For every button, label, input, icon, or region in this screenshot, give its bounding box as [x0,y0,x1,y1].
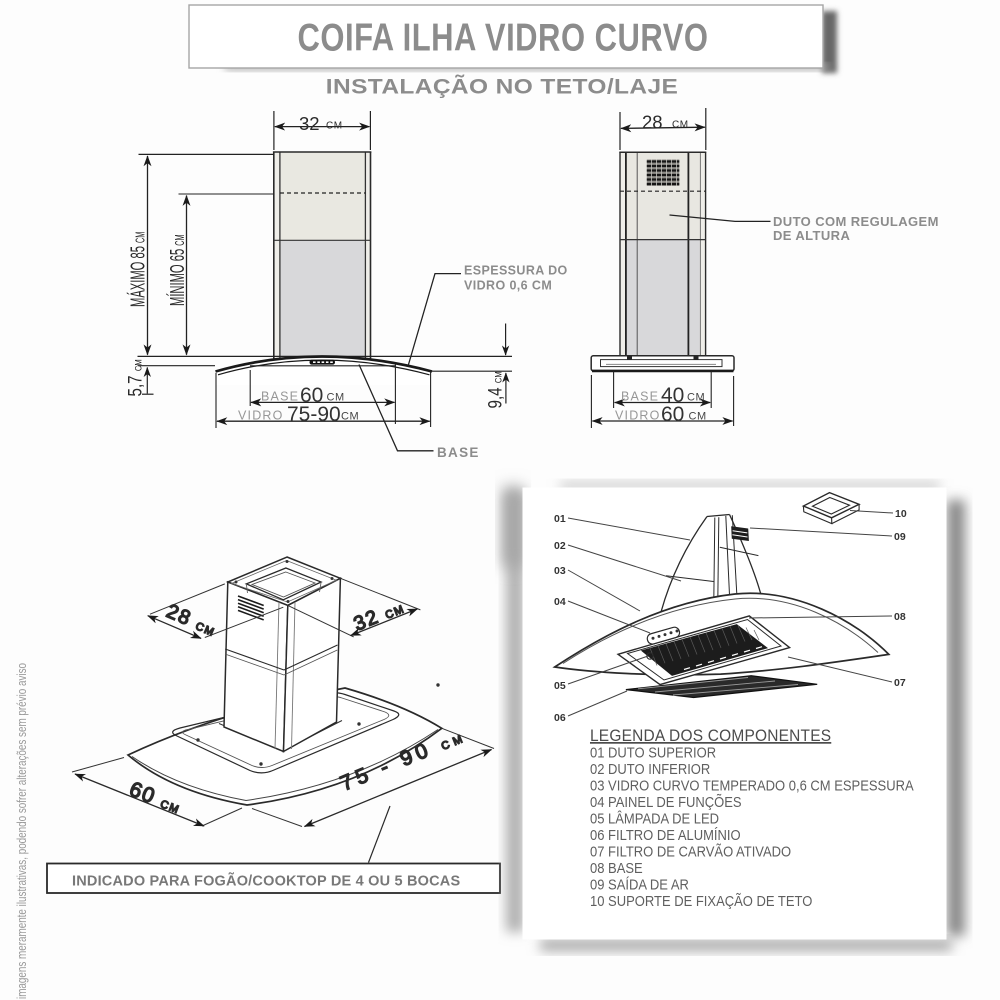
svg-text:10: 10 [895,508,907,520]
svg-text:02 DUTO INFERIOR: 02 DUTO INFERIOR [590,761,710,777]
svg-text:75-90: 75-90 [287,403,341,426]
svg-text:CM: CM [341,411,359,423]
svg-text:CM: CM [326,121,343,132]
svg-text:01 DUTO SUPERIOR: 01 DUTO SUPERIOR [590,745,716,761]
svg-text:ESPESSURA DO: ESPESSURA DO [464,264,568,278]
svg-text:INDICADO PARA FOGÃO/COOKTOP DE: INDICADO PARA FOGÃO/COOKTOP DE 4 OU 5 BO… [72,872,460,890]
svg-text:02: 02 [554,540,566,552]
svg-text:BASE: BASE [621,390,659,404]
svg-text:28: 28 [642,112,663,133]
svg-text:COIFA ILHA VIDRO CURVO: COIFA ILHA VIDRO CURVO [297,16,708,59]
svg-text:INSTALAÇÃO NO TETO/LAJE: INSTALAÇÃO NO TETO/LAJE [326,73,678,98]
svg-text:MÍNIMO 65 CM: MÍNIMO 65 CM [165,234,188,306]
svg-text:VIDRO 0,6 CM: VIDRO 0,6 CM [464,279,552,293]
svg-text:07 FILTRO DE CARVÃO ATIVADO: 07 FILTRO DE CARVÃO ATIVADO [590,844,791,860]
svg-text:04: 04 [554,596,566,608]
svg-text:05 LÂMPADA DE LED: 05 LÂMPADA DE LED [590,811,719,827]
svg-text:LEGENDA DOS COMPONENTES: LEGENDA DOS COMPONENTES [590,726,831,745]
svg-text:BASE: BASE [261,390,299,404]
svg-text:32: 32 [299,113,320,134]
svg-text:09: 09 [894,531,906,543]
svg-text:10 SUPORTE DE FIXAÇÃO DE TETO: 10 SUPORTE DE FIXAÇÃO DE TETO [590,893,812,909]
svg-text:imagens meramente ilustrativas: imagens meramente ilustrativas, podendo … [16,663,29,999]
svg-text:9,4 CM: 9,4 CM [484,371,506,408]
svg-text:CM: CM [327,392,345,404]
svg-text:CM: CM [672,120,689,131]
svg-text:DE ALTURA: DE ALTURA [773,228,850,243]
svg-text:DUTO COM REGULAGEM: DUTO COM REGULAGEM [773,214,939,229]
svg-text:05: 05 [554,680,566,692]
svg-text:VIDRO: VIDRO [238,409,284,423]
svg-text:CM: CM [687,392,705,404]
svg-text:08: 08 [894,611,906,623]
svg-text:09 SAÍDA DE AR: 09 SAÍDA DE AR [590,877,689,893]
svg-text:06: 06 [554,712,566,724]
svg-text:04 PAINEL DE FUNÇÕES: 04 PAINEL DE FUNÇÕES [590,794,742,810]
svg-text:60: 60 [661,403,684,426]
svg-text:MÁXIMO 85 CM: MÁXIMO 85 CM [126,232,149,307]
svg-text:VIDRO: VIDRO [615,409,661,423]
svg-text:BASE: BASE [437,445,480,460]
svg-text:01: 01 [554,513,566,525]
svg-text:5,7 CM: 5,7 CM [124,359,146,396]
svg-text:08 BASE: 08 BASE [590,860,643,876]
svg-text:07: 07 [894,677,906,689]
svg-text:03 VIDRO CURVO TEMPERADO 0,6 C: 03 VIDRO CURVO TEMPERADO 0,6 CM ESPESSUR… [590,778,915,794]
svg-text:CM: CM [689,411,707,423]
svg-text:03: 03 [554,565,566,577]
svg-text:06 FILTRO DE ALUMÍNIO: 06 FILTRO DE ALUMÍNIO [590,827,741,843]
